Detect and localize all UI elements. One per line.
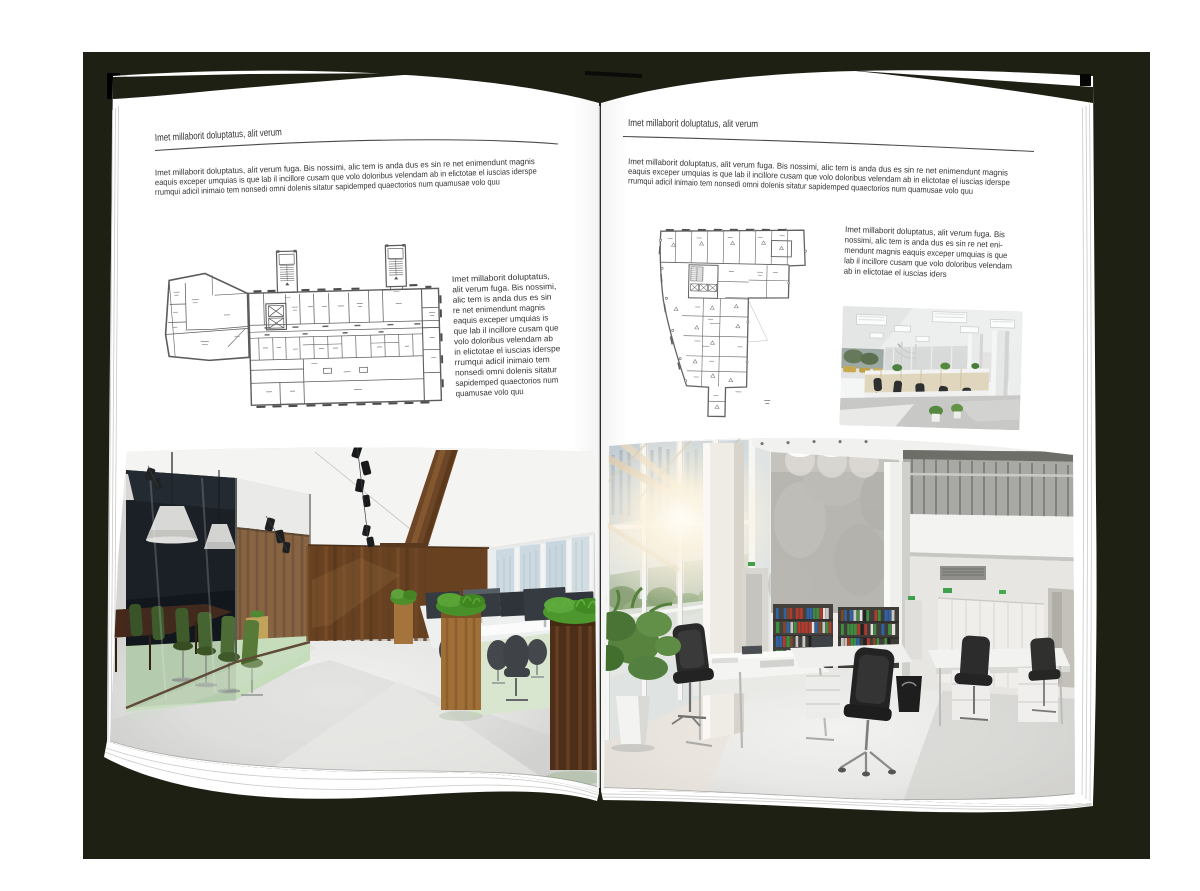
svg-text:Imet millaborit doluptatus, al: Imet millaborit doluptatus, alit verum bbox=[628, 118, 758, 130]
